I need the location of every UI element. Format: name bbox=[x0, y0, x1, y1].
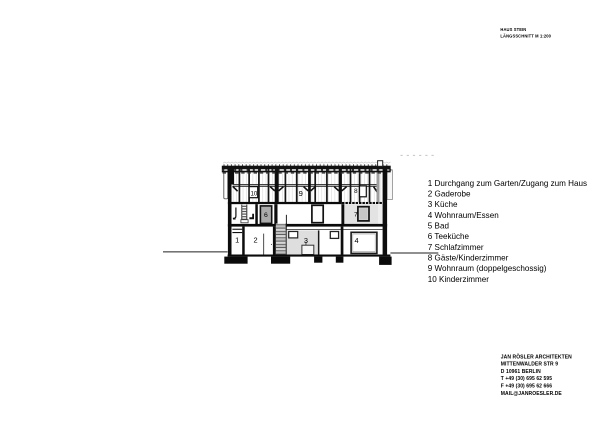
svg-text:5 Bad: 5 Bad bbox=[428, 222, 449, 231]
svg-text:3: 3 bbox=[304, 236, 308, 245]
svg-text:JAN RÖSLER ARCHITEKTEN: JAN RÖSLER ARCHITEKTEN bbox=[501, 353, 572, 360]
svg-text:LÄNGSSCHNITT M 1:200: LÄNGSSCHNITT M 1:200 bbox=[500, 33, 551, 38]
svg-text:4 Wohnraum/Essen: 4 Wohnraum/Essen bbox=[428, 211, 499, 220]
svg-text:9: 9 bbox=[299, 189, 303, 198]
svg-text:10: 10 bbox=[250, 190, 257, 197]
svg-text:6: 6 bbox=[264, 212, 268, 219]
svg-text:4: 4 bbox=[355, 236, 359, 245]
svg-text:6 Teeküche: 6 Teeküche bbox=[428, 232, 470, 241]
svg-text:1: 1 bbox=[235, 236, 239, 245]
svg-text:7 Schlafzimmer: 7 Schlafzimmer bbox=[428, 243, 484, 252]
svg-text:MAIL@JANROESLER.DE: MAIL@JANROESLER.DE bbox=[501, 391, 563, 397]
svg-text:8 Gäste/Kinderzimmer: 8 Gäste/Kinderzimmer bbox=[428, 253, 509, 262]
svg-text:D 10961 BERLIN: D 10961 BERLIN bbox=[501, 369, 541, 375]
svg-text:8: 8 bbox=[354, 188, 358, 195]
svg-text:1 Durchgang zum Garten/Zugang: 1 Durchgang zum Garten/Zugang zum Haus bbox=[428, 179, 587, 188]
svg-text:MITTENWALDER STR 9: MITTENWALDER STR 9 bbox=[501, 362, 558, 368]
svg-text:2: 2 bbox=[254, 235, 258, 244]
svg-text:3 Küche: 3 Küche bbox=[428, 200, 458, 209]
svg-text:2 Gaderobe: 2 Gaderobe bbox=[428, 190, 471, 199]
svg-text:10 Kinderzimmer: 10 Kinderzimmer bbox=[428, 275, 489, 284]
svg-text:HAUS STEIN: HAUS STEIN bbox=[500, 27, 526, 32]
svg-text:7: 7 bbox=[354, 211, 358, 218]
svg-text:F +49 (30) 695 62 666: F +49 (30) 695 62 666 bbox=[501, 384, 552, 390]
svg-text:9 Wohnraum (doppelgeschossig): 9 Wohnraum (doppelgeschossig) bbox=[428, 264, 547, 273]
svg-text:T +49 (30) 695 62 595: T +49 (30) 695 62 595 bbox=[501, 376, 552, 382]
